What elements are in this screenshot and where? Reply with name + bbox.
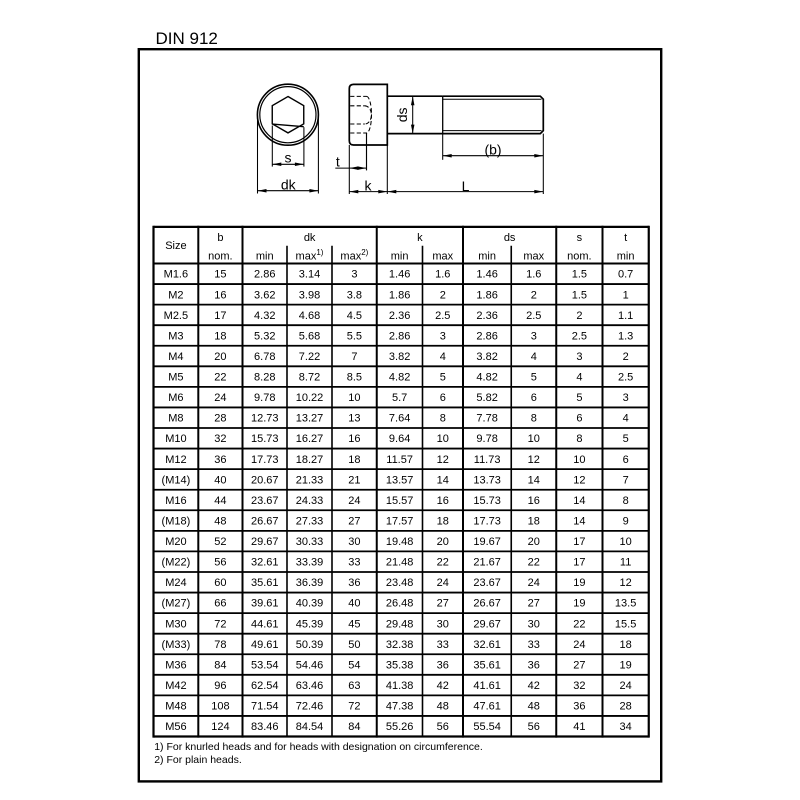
- svg-text:39.61: 39.61: [251, 598, 279, 610]
- svg-text:3: 3: [623, 392, 629, 404]
- svg-text:1.5: 1.5: [572, 269, 587, 281]
- svg-text:18: 18: [437, 515, 449, 527]
- svg-text:48: 48: [437, 701, 449, 713]
- svg-text:1.5: 1.5: [572, 289, 587, 301]
- svg-text:32: 32: [214, 433, 226, 445]
- svg-text:M8: M8: [168, 413, 183, 425]
- svg-text:30.33: 30.33: [296, 536, 324, 548]
- svg-text:44: 44: [214, 495, 226, 507]
- svg-text:24: 24: [528, 577, 540, 589]
- svg-text:22: 22: [528, 557, 540, 569]
- svg-text:54.46: 54.46: [296, 659, 324, 671]
- svg-text:23.67: 23.67: [473, 577, 501, 589]
- svg-text:2.86: 2.86: [476, 330, 497, 342]
- svg-text:(M18): (M18): [162, 515, 191, 527]
- svg-text:4: 4: [576, 372, 582, 384]
- svg-text:M10: M10: [165, 433, 186, 445]
- svg-text:36: 36: [348, 577, 360, 589]
- svg-text:35.61: 35.61: [473, 659, 501, 671]
- svg-text:Size: Size: [165, 240, 186, 252]
- svg-text:56: 56: [214, 557, 226, 569]
- svg-text:29.67: 29.67: [473, 618, 501, 630]
- svg-text:M16: M16: [165, 495, 186, 507]
- svg-text:53.54: 53.54: [251, 659, 279, 671]
- svg-text:1.46: 1.46: [389, 269, 410, 281]
- svg-text:5: 5: [623, 433, 629, 445]
- svg-text:M3: M3: [168, 330, 183, 342]
- svg-text:55.26: 55.26: [386, 721, 414, 733]
- svg-text:54: 54: [348, 659, 360, 671]
- svg-text:20.67: 20.67: [251, 474, 279, 486]
- svg-text:23.48: 23.48: [386, 577, 414, 589]
- svg-text:18: 18: [214, 330, 226, 342]
- svg-text:min: min: [478, 250, 496, 262]
- svg-text:12: 12: [528, 454, 540, 466]
- svg-text:40: 40: [348, 598, 360, 610]
- svg-text:3.82: 3.82: [389, 351, 410, 363]
- svg-text:72: 72: [214, 618, 226, 630]
- svg-text:(M33): (M33): [162, 639, 191, 651]
- svg-text:2.86: 2.86: [389, 330, 410, 342]
- svg-text:min: min: [256, 250, 274, 262]
- svg-text:36: 36: [214, 454, 226, 466]
- svg-text:13.73: 13.73: [473, 474, 501, 486]
- svg-text:nom.: nom.: [567, 250, 591, 262]
- svg-text:47.38: 47.38: [386, 701, 414, 713]
- svg-text:(M27): (M27): [162, 598, 191, 610]
- svg-text:dk: dk: [281, 176, 297, 192]
- svg-text:40.39: 40.39: [296, 598, 324, 610]
- svg-text:27: 27: [437, 598, 449, 610]
- svg-text:M1.6: M1.6: [164, 269, 188, 281]
- svg-text:78: 78: [214, 639, 226, 651]
- svg-text:k: k: [365, 178, 373, 194]
- svg-text:1.6: 1.6: [435, 269, 450, 281]
- svg-text:4: 4: [623, 413, 629, 425]
- svg-text:24: 24: [348, 495, 360, 507]
- svg-text:10: 10: [620, 536, 632, 548]
- svg-text:17.57: 17.57: [386, 515, 414, 527]
- svg-text:6: 6: [576, 413, 582, 425]
- svg-text:13.27: 13.27: [296, 413, 324, 425]
- svg-text:k: k: [417, 232, 423, 244]
- svg-text:32.38: 32.38: [386, 639, 414, 651]
- svg-text:2.5: 2.5: [618, 372, 633, 384]
- svg-text:41: 41: [573, 721, 585, 733]
- svg-text:13: 13: [348, 413, 360, 425]
- svg-text:2.5: 2.5: [572, 330, 587, 342]
- svg-text:21: 21: [348, 474, 360, 486]
- svg-text:32: 32: [573, 680, 585, 692]
- svg-text:2.5: 2.5: [526, 310, 541, 322]
- svg-text:13.57: 13.57: [386, 474, 414, 486]
- svg-text:2: 2: [440, 289, 446, 301]
- svg-text:14: 14: [528, 474, 540, 486]
- svg-text:b: b: [217, 232, 223, 244]
- svg-text:4.5: 4.5: [347, 310, 362, 322]
- svg-text:1.3: 1.3: [618, 330, 633, 342]
- svg-text:22: 22: [573, 618, 585, 630]
- svg-text:72.46: 72.46: [296, 701, 324, 713]
- svg-text:max1): max1): [296, 248, 324, 263]
- svg-text:71.54: 71.54: [251, 701, 279, 713]
- svg-text:15.73: 15.73: [473, 495, 501, 507]
- svg-text:(M14): (M14): [162, 474, 191, 486]
- svg-text:30: 30: [348, 536, 360, 548]
- svg-text:max: max: [523, 250, 544, 262]
- svg-text:24.33: 24.33: [296, 495, 324, 507]
- svg-text:6: 6: [623, 454, 629, 466]
- svg-text:35.38: 35.38: [386, 659, 414, 671]
- svg-text:24: 24: [573, 639, 585, 651]
- svg-text:5: 5: [576, 392, 582, 404]
- svg-text:5: 5: [440, 372, 446, 384]
- svg-text:24: 24: [620, 680, 632, 692]
- svg-text:7: 7: [351, 351, 357, 363]
- svg-text:5.5: 5.5: [347, 330, 362, 342]
- svg-text:19: 19: [573, 577, 585, 589]
- svg-text:15.73: 15.73: [251, 433, 279, 445]
- svg-text:max: max: [432, 250, 453, 262]
- svg-text:ds: ds: [504, 232, 516, 244]
- svg-text:41.38: 41.38: [386, 680, 414, 692]
- svg-text:36: 36: [437, 659, 449, 671]
- svg-text:3.98: 3.98: [299, 289, 320, 301]
- svg-text:2: 2: [623, 351, 629, 363]
- svg-text:34: 34: [620, 721, 632, 733]
- svg-text:14: 14: [573, 495, 585, 507]
- svg-text:84.54: 84.54: [296, 721, 324, 733]
- svg-text:3.62: 3.62: [254, 289, 275, 301]
- svg-text:1.6: 1.6: [526, 269, 541, 281]
- svg-text:1.46: 1.46: [476, 269, 497, 281]
- svg-text:3: 3: [531, 330, 537, 342]
- svg-text:8.72: 8.72: [299, 372, 320, 384]
- svg-text:16.27: 16.27: [296, 433, 324, 445]
- svg-text:27: 27: [528, 598, 540, 610]
- svg-text:17.73: 17.73: [251, 454, 279, 466]
- svg-text:M4: M4: [168, 351, 183, 363]
- svg-text:3.8: 3.8: [347, 289, 362, 301]
- svg-text:3.82: 3.82: [476, 351, 497, 363]
- svg-text:23.67: 23.67: [251, 495, 279, 507]
- svg-text:8: 8: [576, 433, 582, 445]
- svg-text:30: 30: [437, 618, 449, 630]
- svg-text:1) For knurled heads and for h: 1) For knurled heads and for heads with …: [154, 741, 483, 753]
- svg-text:8: 8: [440, 413, 446, 425]
- svg-text:26.48: 26.48: [386, 598, 414, 610]
- svg-text:50: 50: [348, 639, 360, 651]
- svg-text:56: 56: [528, 721, 540, 733]
- svg-text:L: L: [462, 178, 470, 194]
- svg-text:M42: M42: [165, 680, 186, 692]
- svg-text:96: 96: [214, 680, 226, 692]
- svg-text:8.28: 8.28: [254, 372, 275, 384]
- svg-text:5.32: 5.32: [254, 330, 275, 342]
- svg-text:3.14: 3.14: [299, 269, 320, 281]
- svg-text:33: 33: [348, 557, 360, 569]
- svg-text:124: 124: [211, 721, 229, 733]
- svg-text:19: 19: [620, 659, 632, 671]
- svg-text:22: 22: [437, 557, 449, 569]
- svg-text:(b): (b): [484, 142, 501, 158]
- svg-text:63.46: 63.46: [296, 680, 324, 692]
- svg-text:s: s: [285, 149, 292, 165]
- svg-text:4.82: 4.82: [476, 372, 497, 384]
- svg-text:84: 84: [214, 659, 226, 671]
- svg-text:83.46: 83.46: [251, 721, 279, 733]
- svg-text:42: 42: [437, 680, 449, 692]
- svg-text:19.67: 19.67: [473, 536, 501, 548]
- svg-text:26.67: 26.67: [473, 598, 501, 610]
- svg-text:12: 12: [437, 454, 449, 466]
- svg-text:9: 9: [623, 515, 629, 527]
- svg-text:6: 6: [440, 392, 446, 404]
- svg-text:19.48: 19.48: [386, 536, 414, 548]
- svg-text:1.1: 1.1: [618, 310, 633, 322]
- svg-text:60: 60: [214, 577, 226, 589]
- svg-text:48: 48: [528, 701, 540, 713]
- svg-text:12: 12: [620, 577, 632, 589]
- svg-text:44.61: 44.61: [251, 618, 279, 630]
- svg-text:45.39: 45.39: [296, 618, 324, 630]
- svg-text:27.33: 27.33: [296, 515, 324, 527]
- svg-text:3: 3: [440, 330, 446, 342]
- svg-text:50.39: 50.39: [296, 639, 324, 651]
- svg-text:10: 10: [348, 392, 360, 404]
- svg-text:9.78: 9.78: [254, 392, 275, 404]
- svg-text:63: 63: [348, 680, 360, 692]
- svg-text:5.68: 5.68: [299, 330, 320, 342]
- svg-text:M5: M5: [168, 372, 183, 384]
- svg-text:33: 33: [528, 639, 540, 651]
- svg-text:17: 17: [214, 310, 226, 322]
- svg-text:2) For plain heads.: 2) For plain heads.: [154, 754, 242, 766]
- svg-text:nom.: nom.: [208, 250, 232, 262]
- svg-text:18: 18: [528, 515, 540, 527]
- svg-text:4.82: 4.82: [389, 372, 410, 384]
- svg-text:14: 14: [437, 474, 449, 486]
- svg-text:16: 16: [528, 495, 540, 507]
- svg-text:18: 18: [348, 454, 360, 466]
- svg-text:19: 19: [573, 598, 585, 610]
- svg-text:27: 27: [348, 515, 360, 527]
- svg-text:42: 42: [528, 680, 540, 692]
- svg-text:8: 8: [531, 413, 537, 425]
- svg-text:33: 33: [437, 639, 449, 651]
- svg-text:M20: M20: [165, 536, 186, 548]
- svg-text:2.5: 2.5: [435, 310, 450, 322]
- svg-text:35.61: 35.61: [251, 577, 279, 589]
- svg-text:8.5: 8.5: [347, 372, 362, 384]
- svg-text:20: 20: [528, 536, 540, 548]
- svg-text:56: 56: [437, 721, 449, 733]
- svg-text:24: 24: [214, 392, 226, 404]
- svg-text:21.48: 21.48: [386, 557, 414, 569]
- svg-text:40: 40: [214, 474, 226, 486]
- svg-text:17: 17: [573, 557, 585, 569]
- svg-text:33.39: 33.39: [296, 557, 324, 569]
- svg-text:M2: M2: [168, 289, 183, 301]
- svg-text:t: t: [336, 154, 340, 170]
- svg-text:36: 36: [528, 659, 540, 671]
- svg-text:8: 8: [623, 495, 629, 507]
- svg-text:6.78: 6.78: [254, 351, 275, 363]
- svg-text:84: 84: [348, 721, 360, 733]
- svg-text:108: 108: [211, 701, 229, 713]
- svg-text:2.36: 2.36: [389, 310, 410, 322]
- svg-text:2.36: 2.36: [476, 310, 497, 322]
- svg-text:16: 16: [214, 289, 226, 301]
- svg-text:2: 2: [531, 289, 537, 301]
- svg-text:29.67: 29.67: [251, 536, 279, 548]
- svg-text:s: s: [577, 232, 583, 244]
- svg-text:26.67: 26.67: [251, 515, 279, 527]
- svg-text:29.48: 29.48: [386, 618, 414, 630]
- svg-text:6: 6: [531, 392, 537, 404]
- svg-text:5.7: 5.7: [392, 392, 407, 404]
- svg-text:1.86: 1.86: [476, 289, 497, 301]
- svg-text:11.57: 11.57: [386, 454, 413, 466]
- svg-text:16: 16: [437, 495, 449, 507]
- svg-text:M30: M30: [165, 618, 186, 630]
- svg-text:7.64: 7.64: [389, 413, 410, 425]
- svg-text:4.68: 4.68: [299, 310, 320, 322]
- svg-text:21.33: 21.33: [296, 474, 324, 486]
- svg-text:32.61: 32.61: [251, 557, 279, 569]
- svg-text:max2): max2): [340, 248, 368, 263]
- svg-text:5.82: 5.82: [476, 392, 497, 404]
- svg-text:M56: M56: [165, 721, 186, 733]
- svg-text:4.32: 4.32: [254, 310, 275, 322]
- svg-text:min: min: [391, 250, 409, 262]
- svg-text:21.67: 21.67: [473, 557, 501, 569]
- svg-text:47.61: 47.61: [473, 701, 501, 713]
- svg-text:dk: dk: [304, 232, 316, 244]
- svg-text:7: 7: [623, 474, 629, 486]
- svg-text:18.27: 18.27: [296, 454, 324, 466]
- svg-text:3: 3: [576, 351, 582, 363]
- svg-text:5: 5: [531, 372, 537, 384]
- svg-text:1: 1: [623, 289, 629, 301]
- svg-text:9.64: 9.64: [389, 433, 410, 445]
- svg-text:20: 20: [437, 536, 449, 548]
- svg-text:4: 4: [440, 351, 446, 363]
- svg-text:15: 15: [214, 269, 226, 281]
- svg-text:M36: M36: [165, 659, 186, 671]
- svg-text:24: 24: [437, 577, 449, 589]
- svg-text:45: 45: [348, 618, 360, 630]
- svg-text:52: 52: [214, 536, 226, 548]
- svg-text:41.61: 41.61: [473, 680, 501, 692]
- svg-text:7.22: 7.22: [299, 351, 320, 363]
- svg-text:10: 10: [437, 433, 449, 445]
- svg-text:0.7: 0.7: [618, 269, 633, 281]
- svg-text:32.61: 32.61: [473, 639, 501, 651]
- svg-text:10.22: 10.22: [296, 392, 324, 404]
- svg-text:11: 11: [620, 557, 631, 569]
- svg-text:M12: M12: [165, 454, 186, 466]
- svg-text:17.73: 17.73: [473, 515, 501, 527]
- svg-text:(M22): (M22): [162, 557, 191, 569]
- svg-text:55.54: 55.54: [473, 721, 501, 733]
- svg-text:2.86: 2.86: [254, 269, 275, 281]
- svg-text:16: 16: [348, 433, 360, 445]
- svg-text:min: min: [617, 250, 635, 262]
- svg-text:36.39: 36.39: [296, 577, 324, 589]
- svg-text:72: 72: [348, 701, 360, 713]
- svg-text:DIN 912: DIN 912: [156, 29, 218, 48]
- svg-text:10: 10: [573, 454, 585, 466]
- svg-text:18: 18: [620, 639, 632, 651]
- svg-text:9.78: 9.78: [476, 433, 497, 445]
- svg-text:14: 14: [573, 515, 585, 527]
- svg-text:62.54: 62.54: [251, 680, 279, 692]
- svg-text:30: 30: [528, 618, 540, 630]
- svg-text:t: t: [624, 232, 627, 244]
- svg-text:28: 28: [620, 701, 632, 713]
- svg-text:66: 66: [214, 598, 226, 610]
- svg-text:10: 10: [528, 433, 540, 445]
- svg-text:M48: M48: [165, 701, 186, 713]
- svg-text:20: 20: [214, 351, 226, 363]
- svg-text:12.73: 12.73: [251, 413, 279, 425]
- svg-text:27: 27: [573, 659, 585, 671]
- svg-text:36: 36: [573, 701, 585, 713]
- svg-text:11.73: 11.73: [474, 454, 501, 466]
- svg-text:3: 3: [351, 269, 357, 281]
- svg-text:15.5: 15.5: [615, 618, 636, 630]
- svg-text:17: 17: [573, 536, 585, 548]
- svg-text:4: 4: [531, 351, 537, 363]
- svg-text:15.57: 15.57: [386, 495, 414, 507]
- svg-text:22: 22: [214, 372, 226, 384]
- svg-text:ds: ds: [394, 108, 410, 123]
- svg-text:M24: M24: [165, 577, 186, 589]
- svg-text:49.61: 49.61: [251, 639, 279, 651]
- svg-text:M2.5: M2.5: [164, 310, 188, 322]
- svg-text:28: 28: [214, 413, 226, 425]
- svg-text:12: 12: [573, 474, 585, 486]
- svg-text:48: 48: [214, 515, 226, 527]
- svg-text:2: 2: [576, 310, 582, 322]
- svg-text:M6: M6: [168, 392, 183, 404]
- svg-text:7.78: 7.78: [476, 413, 497, 425]
- svg-text:13.5: 13.5: [615, 598, 636, 610]
- svg-text:1.86: 1.86: [389, 289, 410, 301]
